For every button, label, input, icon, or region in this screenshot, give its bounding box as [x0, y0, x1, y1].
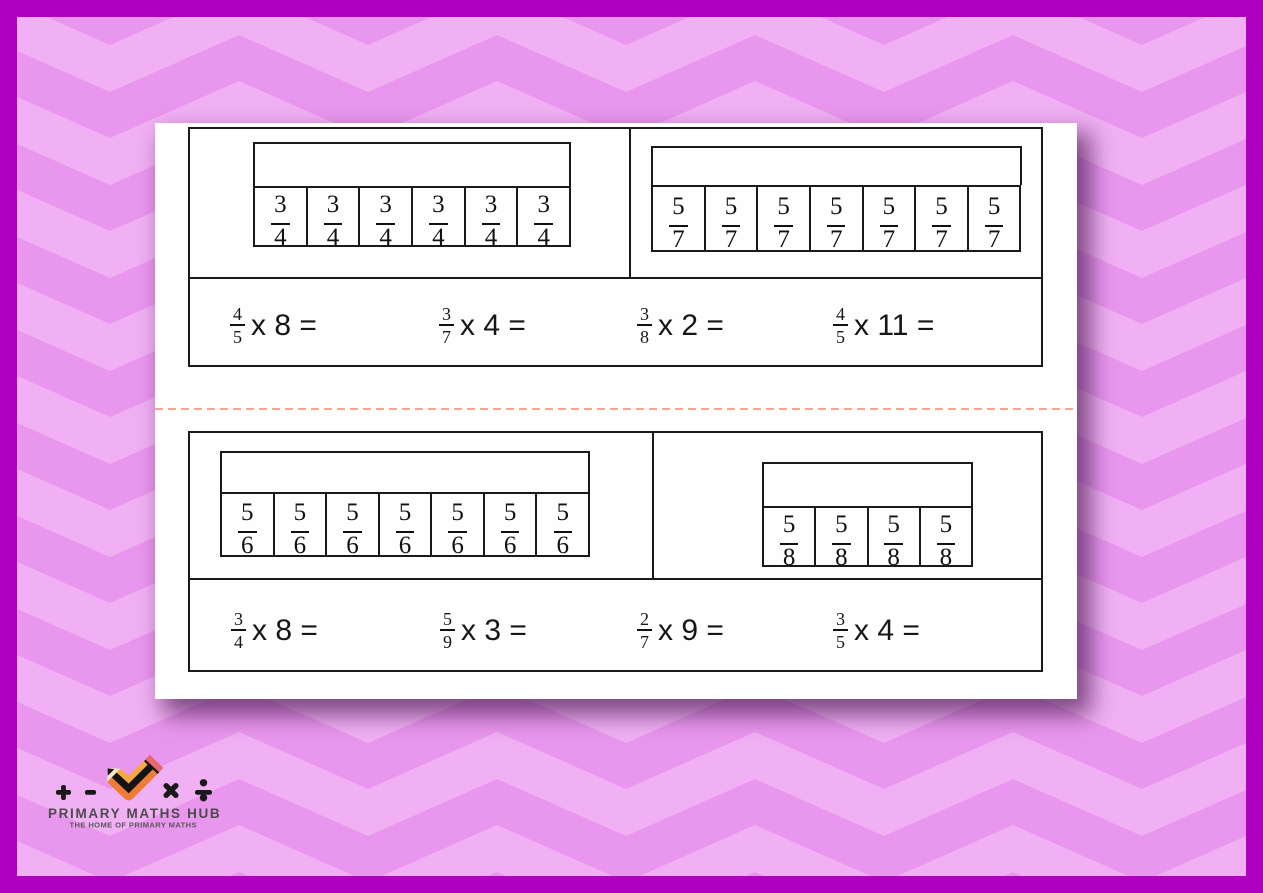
- svg-text:THE HOME OF PRIMARY MATHS: THE HOME OF PRIMARY MATHS: [70, 821, 197, 830]
- svg-text:PRIMARY MATHS HUB: PRIMARY MATHS HUB: [48, 806, 221, 821]
